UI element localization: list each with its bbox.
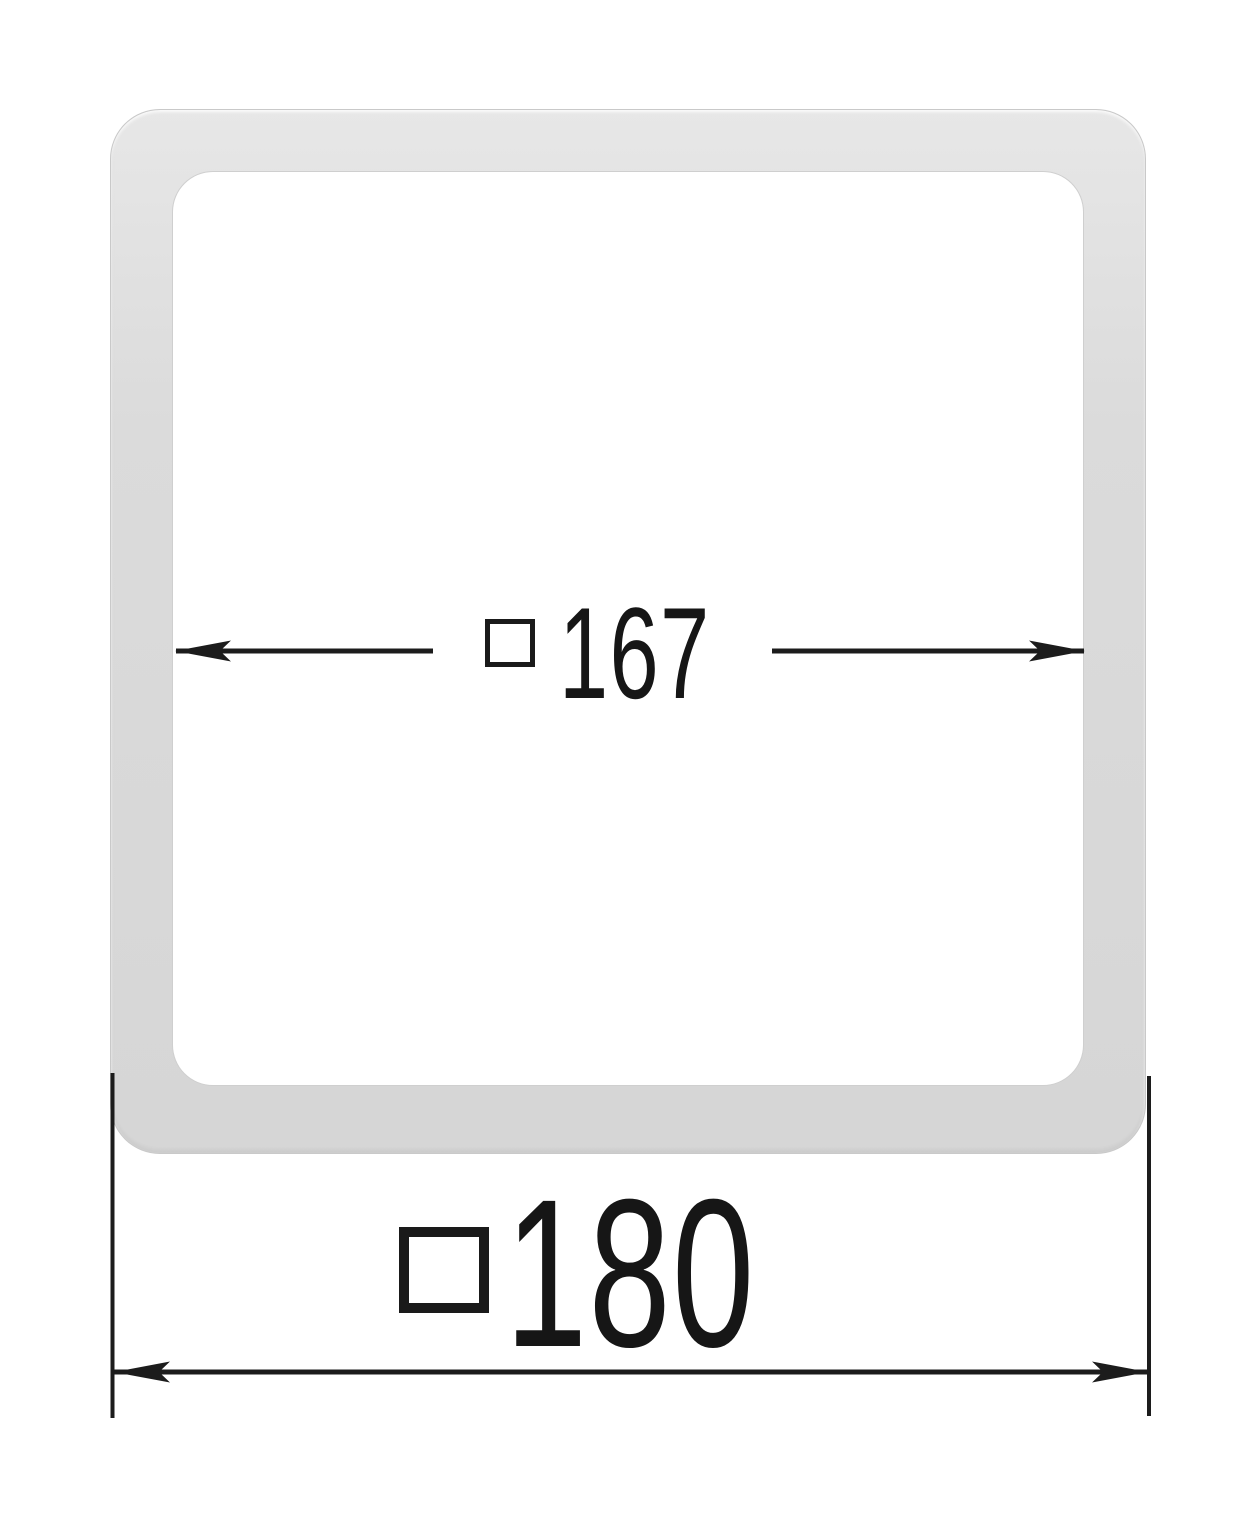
square-symbol-icon: [399, 1227, 489, 1313]
outer-dimension-value: 180: [505, 1168, 756, 1379]
dimension-drawing: 167 180: [0, 0, 1242, 1513]
outer-dim-arrowhead-right-icon: [1092, 1362, 1148, 1383]
inner-dimension-value: 167: [559, 588, 711, 718]
square-symbol-icon: [485, 619, 535, 667]
outer-dim-arrowhead-left-icon: [114, 1362, 170, 1383]
